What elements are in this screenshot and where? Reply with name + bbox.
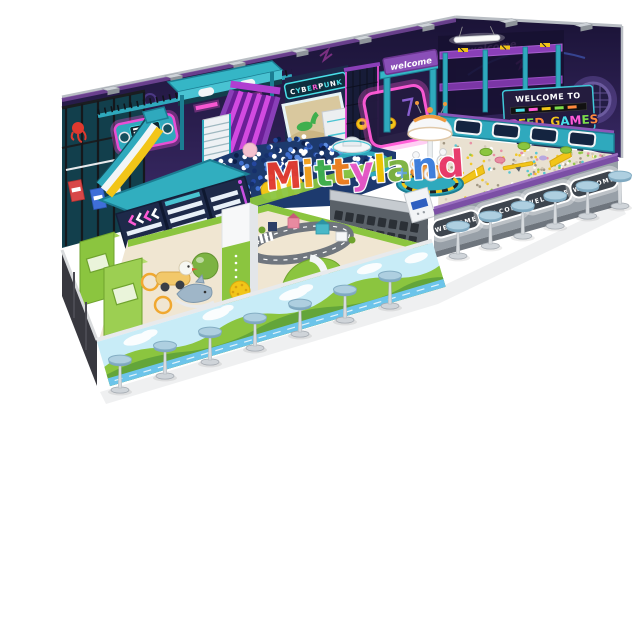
window — [492, 123, 519, 139]
window — [530, 127, 557, 143]
pod-seat — [561, 147, 572, 153]
window — [568, 131, 595, 147]
playground-render-image: WELCOME — [0, 0, 640, 640]
playground-svg: WELCOME — [0, 0, 640, 640]
window — [454, 119, 481, 135]
pod-seat — [518, 142, 530, 149]
pod-seat — [480, 148, 492, 155]
pink-toy — [495, 157, 505, 163]
green-ball-toy — [192, 253, 218, 279]
pink-toy — [539, 156, 547, 161]
green-kiosk-2 — [104, 258, 148, 336]
pink-ball-decor — [243, 143, 257, 157]
